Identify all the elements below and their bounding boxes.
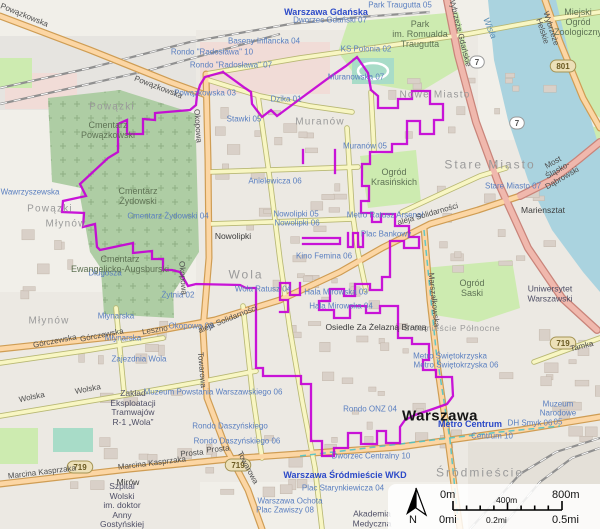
scale-miles-zero: 0mi xyxy=(439,514,457,526)
building xyxy=(467,338,478,343)
building xyxy=(369,387,376,391)
building xyxy=(98,356,103,365)
scale-meters-zero: 0m xyxy=(440,489,455,501)
building xyxy=(265,436,274,441)
route-badge-number: 719 xyxy=(73,463,87,472)
building xyxy=(124,398,138,406)
building xyxy=(178,449,192,459)
map-canvas: 77801719719719 xyxy=(0,0,600,529)
building xyxy=(136,354,147,363)
building xyxy=(578,348,589,356)
building xyxy=(104,448,117,459)
building xyxy=(342,378,353,384)
building xyxy=(21,290,29,299)
building xyxy=(221,107,229,118)
route-badge-number: 7 xyxy=(475,58,480,67)
building xyxy=(23,287,35,291)
building xyxy=(369,301,380,309)
building xyxy=(403,349,409,354)
building xyxy=(544,241,556,247)
route-badge-801: 801 xyxy=(550,60,576,72)
building xyxy=(569,427,583,436)
building xyxy=(498,230,505,237)
building xyxy=(367,422,372,429)
building xyxy=(291,237,300,244)
building xyxy=(545,363,559,373)
building xyxy=(559,410,569,419)
building xyxy=(495,108,500,114)
building xyxy=(499,261,513,266)
building xyxy=(68,260,73,270)
area-ogrod-saski xyxy=(424,260,520,322)
building xyxy=(147,454,157,464)
building xyxy=(206,467,214,473)
area-urban-central xyxy=(196,30,478,482)
building xyxy=(505,78,512,83)
building xyxy=(457,107,465,115)
building xyxy=(227,145,240,155)
building xyxy=(280,485,292,494)
building xyxy=(139,454,149,459)
building xyxy=(308,322,320,326)
building xyxy=(22,230,34,240)
building xyxy=(171,391,182,396)
building xyxy=(320,342,330,352)
building xyxy=(455,252,462,258)
building xyxy=(264,209,273,213)
route-badge-number: 719 xyxy=(556,339,570,348)
building xyxy=(332,437,338,442)
building xyxy=(335,184,340,191)
building xyxy=(322,194,335,199)
building xyxy=(329,208,340,213)
building xyxy=(275,137,282,145)
building xyxy=(289,457,302,467)
building xyxy=(333,194,346,199)
route-badge-7: 7 xyxy=(510,117,525,129)
building xyxy=(255,131,260,137)
area-green-southwest xyxy=(0,428,38,464)
area-pitch-wola xyxy=(53,428,93,452)
route-badge-number: 801 xyxy=(556,62,570,71)
building xyxy=(215,127,225,136)
building xyxy=(500,373,513,379)
building xyxy=(352,410,359,414)
building xyxy=(569,360,576,364)
building xyxy=(595,386,600,397)
building xyxy=(408,79,421,84)
route-badge-719: 719 xyxy=(550,337,576,349)
route-badge-number: 719 xyxy=(231,461,245,470)
building xyxy=(381,343,389,351)
building xyxy=(541,377,552,386)
building xyxy=(311,202,323,210)
scale-miles-mid: 0.2mi xyxy=(486,515,507,525)
route-badge-7: 7 xyxy=(470,56,485,68)
building xyxy=(506,73,515,78)
scale-miles-max: 0.5mi xyxy=(552,514,579,526)
building xyxy=(305,148,317,153)
building xyxy=(100,438,110,447)
scale-panel: N 0m 400m 800m 0mi 0.2mi 0.5mi xyxy=(388,484,600,529)
map-viewport[interactable]: 77801719719719 Rondo "Radosława" 10Rondo… xyxy=(0,0,600,529)
building xyxy=(544,85,557,92)
building xyxy=(513,86,519,91)
building xyxy=(322,372,334,381)
route-badge-number: 7 xyxy=(515,119,520,128)
building xyxy=(293,256,306,262)
building xyxy=(568,402,582,410)
scale-meters-max: 800m xyxy=(552,489,580,501)
building xyxy=(575,380,589,386)
building xyxy=(453,266,464,273)
building xyxy=(299,132,307,138)
building xyxy=(206,444,212,454)
route-badge-719: 719 xyxy=(225,459,251,471)
building xyxy=(284,124,297,133)
building xyxy=(159,345,165,355)
building xyxy=(91,481,105,490)
building xyxy=(585,427,597,437)
building xyxy=(37,264,49,274)
building xyxy=(79,353,85,362)
building xyxy=(146,344,159,351)
scale-meters-mid: 400m xyxy=(496,495,517,505)
building xyxy=(440,242,448,248)
building xyxy=(389,90,396,99)
building xyxy=(297,479,307,488)
building xyxy=(448,127,455,133)
building xyxy=(70,482,78,489)
building xyxy=(378,391,385,395)
building xyxy=(516,256,525,261)
building xyxy=(221,489,234,494)
building xyxy=(539,330,550,341)
building xyxy=(55,240,62,249)
building xyxy=(357,336,368,342)
building xyxy=(263,487,275,497)
building xyxy=(303,276,313,282)
route-badge-719: 719 xyxy=(67,461,93,473)
building xyxy=(314,226,326,232)
